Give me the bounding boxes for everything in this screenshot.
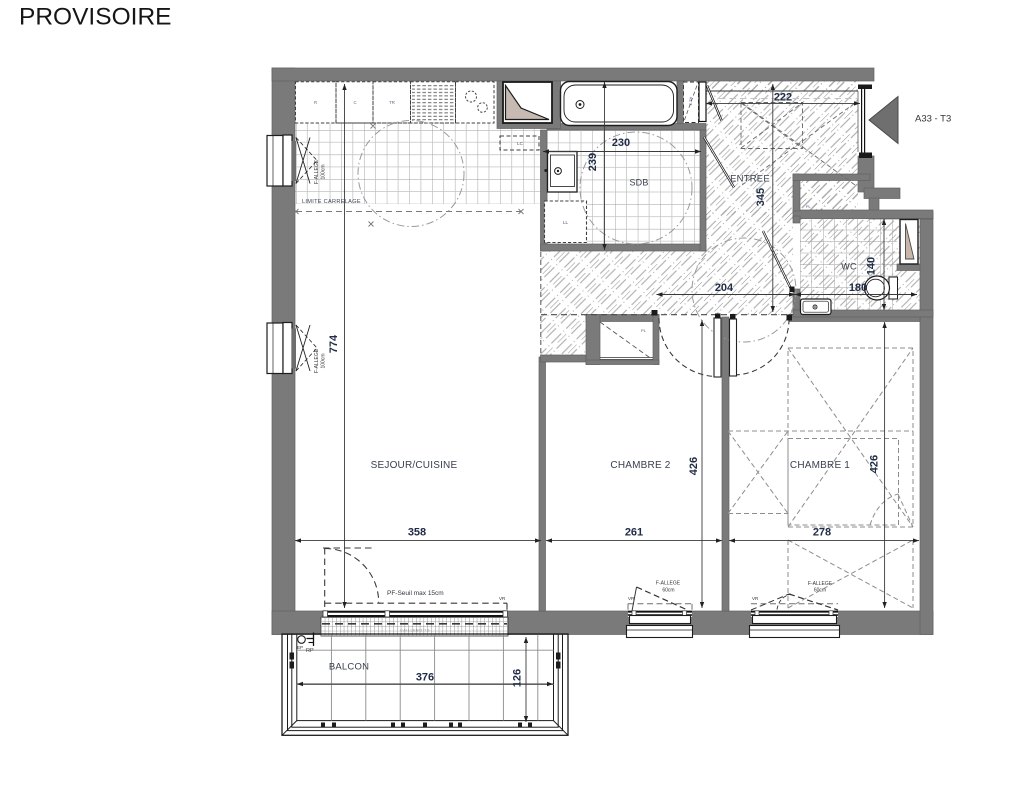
- svg-text:CHAMBRE 1: CHAMBRE 1: [790, 460, 850, 471]
- svg-text:345: 345: [755, 188, 767, 206]
- svg-text:TR: TR: [389, 100, 395, 105]
- svg-text:LC: LC: [517, 141, 524, 146]
- svg-text:PL: PL: [641, 328, 647, 333]
- svg-text:140: 140: [866, 257, 878, 275]
- svg-text:F-ALLEGE: F-ALLEGE: [314, 159, 320, 184]
- svg-text:SDB: SDB: [629, 178, 648, 188]
- svg-text:F-ALLEGE: F-ALLEGE: [808, 581, 833, 587]
- svg-text:BALCON: BALCON: [329, 662, 369, 673]
- svg-text:R: R: [314, 100, 317, 105]
- svg-text:426: 426: [869, 455, 881, 473]
- svg-text:204: 204: [715, 282, 734, 294]
- svg-text:100cm: 100cm: [321, 353, 327, 368]
- svg-text:774: 774: [328, 334, 340, 353]
- svg-text:A33 - T3: A33 - T3: [915, 114, 951, 125]
- svg-text:VR: VR: [628, 596, 635, 601]
- svg-text:239: 239: [587, 153, 599, 171]
- svg-text:261: 261: [625, 526, 643, 538]
- svg-text:F-ALLEGE: F-ALLEGE: [656, 581, 681, 587]
- svg-text:RP: RP: [306, 648, 314, 654]
- svg-text:376: 376: [416, 672, 434, 684]
- svg-text:SEJOUR/CUISINE: SEJOUR/CUISINE: [371, 460, 458, 471]
- svg-text:PL: PL: [806, 205, 811, 209]
- svg-text:F-ALLEGE: F-ALLEGE: [314, 348, 320, 373]
- svg-text:CAILLEBOTIS: CAILLEBOTIS: [400, 629, 430, 633]
- svg-text:358: 358: [408, 526, 426, 538]
- svg-text:WC: WC: [841, 262, 857, 272]
- svg-text:126: 126: [512, 669, 524, 687]
- svg-text:PF-Seuil max 15cm: PF-Seuil max 15cm: [387, 590, 444, 597]
- svg-text:C: C: [353, 100, 356, 105]
- svg-text:222: 222: [774, 91, 792, 103]
- svg-text:VR: VR: [499, 596, 506, 601]
- svg-text:PROVISOIRE: PROVISOIRE: [19, 4, 171, 31]
- svg-text:LL: LL: [563, 220, 569, 225]
- svg-text:180: 180: [849, 282, 867, 294]
- svg-text:EP: EP: [297, 645, 303, 650]
- svg-text:ENTREE: ENTREE: [730, 174, 770, 185]
- svg-text:278: 278: [813, 526, 831, 538]
- svg-text:100cm: 100cm: [321, 164, 327, 179]
- svg-text:CHAMBRE 2: CHAMBRE 2: [610, 460, 670, 471]
- svg-text:426: 426: [688, 457, 700, 475]
- svg-text:VR: VR: [752, 596, 759, 601]
- svg-text:230: 230: [612, 137, 630, 149]
- svg-text:60cm: 60cm: [662, 588, 674, 594]
- svg-text:E.TH: E.TH: [689, 96, 693, 105]
- svg-text:LIMITE CARRELAGE: LIMITE CARRELAGE: [302, 199, 361, 205]
